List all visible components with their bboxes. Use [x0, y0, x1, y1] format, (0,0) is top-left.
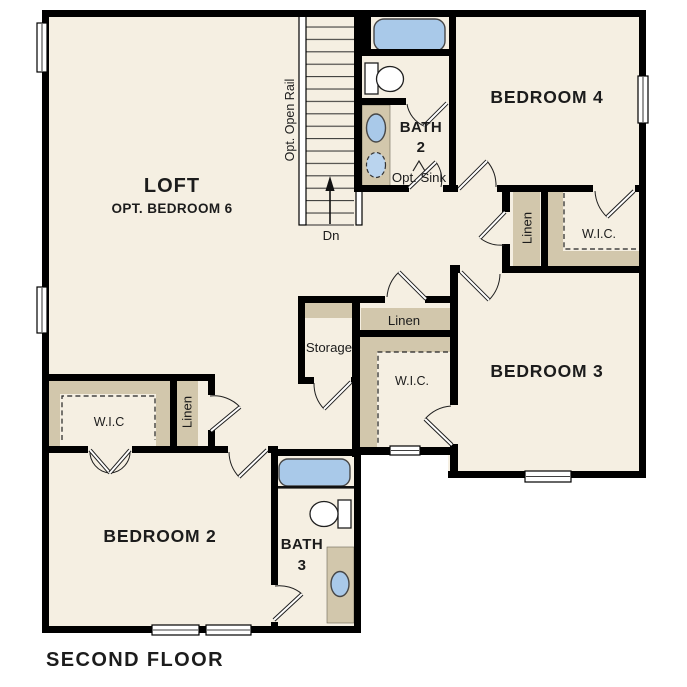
- bath3-label-line2: 3: [298, 557, 307, 574]
- window: [152, 625, 199, 635]
- staircase: [299, 13, 362, 225]
- bath3-label-line1: BATH: [281, 536, 324, 553]
- loft-option-label: OPT. BEDROOM 6: [111, 201, 232, 216]
- window: [37, 287, 47, 333]
- wic-bedroom3-shelf-left: [360, 337, 377, 447]
- opt-open-rail-label: Opt. Open Rail: [283, 79, 297, 162]
- bathtub-bath3: [279, 459, 350, 486]
- tub-wall-bath3: [278, 486, 354, 489]
- opt-sink-label: Opt. Sink: [392, 170, 447, 185]
- window: [37, 23, 47, 72]
- sink-bath2: [367, 114, 386, 142]
- bath2-label-line2: 2: [417, 139, 426, 156]
- plan-title: SECOND FLOOR: [46, 649, 224, 671]
- wic-bedroom3-shelf-top: [360, 337, 450, 352]
- wic-bedroom4-label: W.I.C.: [582, 227, 616, 241]
- floor-plan: LOFT OPT. BEDROOM 6 BEDROOM 4 BEDROOM 3 …: [0, 0, 687, 687]
- window: [638, 76, 648, 123]
- window: [525, 471, 571, 482]
- stair-open-rail: [299, 13, 306, 225]
- toilet-bowl-bath3: [310, 502, 338, 527]
- loft-label: LOFT: [144, 175, 200, 197]
- toilet-tank-bath3: [338, 500, 351, 528]
- sink-bath3: [331, 572, 349, 597]
- storage-label: Storage: [306, 340, 352, 355]
- window: [390, 446, 420, 455]
- optional-sink-bath2: [367, 153, 386, 178]
- toilet-bowl-bath2: [377, 67, 404, 92]
- floor-plan-drawing: LOFT OPT. BEDROOM 6 BEDROOM 4 BEDROOM 3 …: [0, 0, 687, 687]
- linen-bedroom2-label: Linen: [180, 396, 195, 428]
- bedroom2-label: BEDROOM 2: [103, 526, 216, 546]
- bathtub-bath2: [374, 19, 445, 51]
- stair-landing-rail: [356, 188, 362, 225]
- wic-bedroom4-shelf-bottom: [548, 251, 639, 266]
- linen-center-label: Linen: [388, 313, 420, 328]
- bedroom4-label: BEDROOM 4: [490, 87, 603, 107]
- wic-bedroom2-label: W.I.C: [94, 415, 125, 429]
- linen-hall-label: Linen: [520, 212, 535, 244]
- wic-bedroom4-shelf-left: [548, 191, 563, 254]
- bedroom3-label: BEDROOM 3: [490, 361, 603, 381]
- wic-bedroom3-label: W.I.C.: [395, 374, 429, 388]
- bath2-label-line1: BATH: [400, 119, 443, 136]
- window: [206, 625, 251, 635]
- storage-shelf: [305, 303, 352, 318]
- stairs-down-label: Dn: [323, 228, 340, 243]
